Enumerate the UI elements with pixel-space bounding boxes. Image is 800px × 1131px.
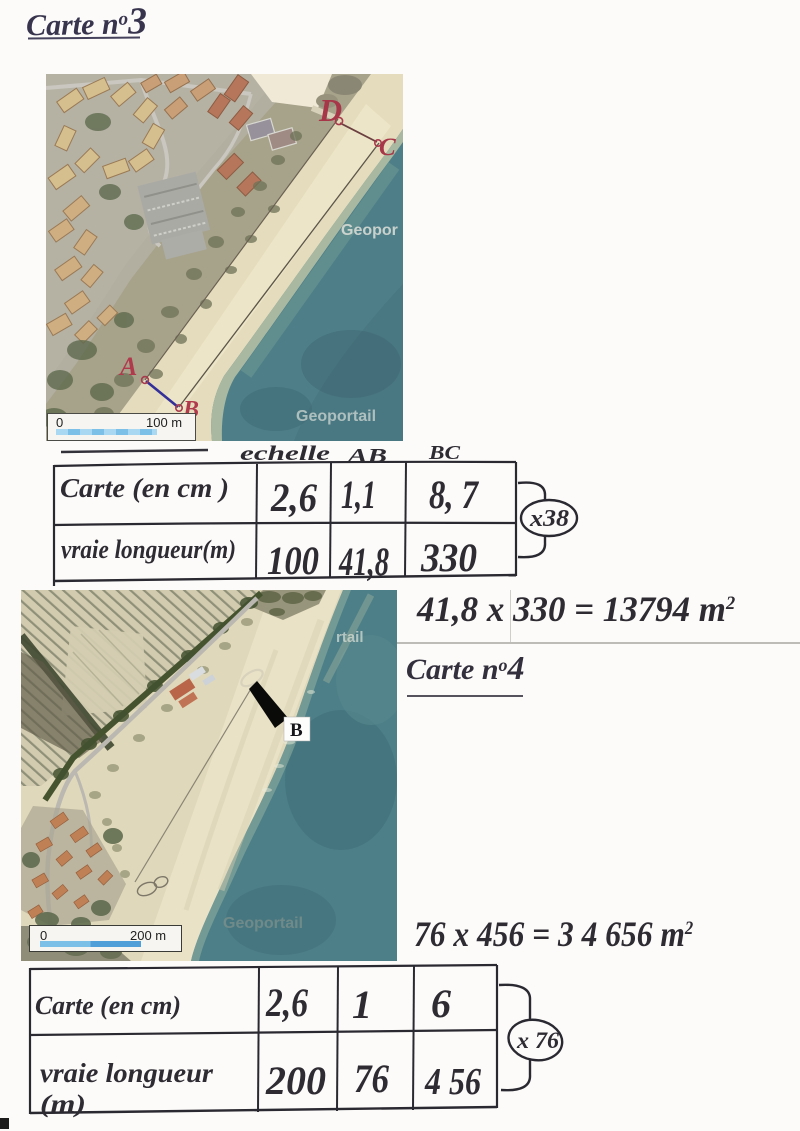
svg-text:Carte (en cm ): Carte (en cm ) — [60, 473, 229, 503]
svg-text:2,6: 2,6 — [265, 980, 308, 1025]
svg-text:100: 100 — [267, 538, 319, 583]
svg-text:6: 6 — [431, 981, 451, 1026]
svg-text:Geopor: Geopor — [341, 222, 398, 239]
svg-text:AB: AB — [345, 445, 387, 467]
svg-text:1,1: 1,1 — [341, 472, 376, 517]
svg-text:4 56: 4 56 — [424, 1061, 481, 1103]
svg-text:x 76: x 76 — [516, 1028, 560, 1053]
svg-text:BC: BC — [428, 442, 461, 464]
svg-text:Geoportail: Geoportail — [223, 915, 303, 932]
svg-text:1: 1 — [352, 982, 372, 1027]
svg-text:2,6: 2,6 — [270, 475, 317, 520]
svg-text:x38: x38 — [529, 506, 569, 532]
svg-text:C: C — [379, 134, 396, 161]
svg-text:41,8: 41,8 — [338, 539, 389, 584]
svg-text:Carte (en cm): Carte (en cm) — [35, 991, 181, 1020]
svg-text:330: 330 — [420, 535, 477, 580]
svg-text:8, 7: 8, 7 — [429, 472, 480, 517]
svg-text:vraie longueur: vraie longueur — [40, 1058, 214, 1088]
svg-text:D: D — [318, 92, 342, 128]
svg-text:vraie longueur(m): vraie longueur(m) — [61, 535, 236, 564]
svg-text:rtail: rtail — [336, 629, 364, 646]
svg-text:Geoportail: Geoportail — [296, 408, 376, 425]
svg-text:A: A — [118, 352, 137, 381]
svg-text:76: 76 — [354, 1056, 389, 1101]
svg-text:B: B — [290, 720, 303, 741]
svg-text:200: 200 — [265, 1058, 326, 1103]
svg-text:(m): (m) — [40, 1091, 86, 1118]
